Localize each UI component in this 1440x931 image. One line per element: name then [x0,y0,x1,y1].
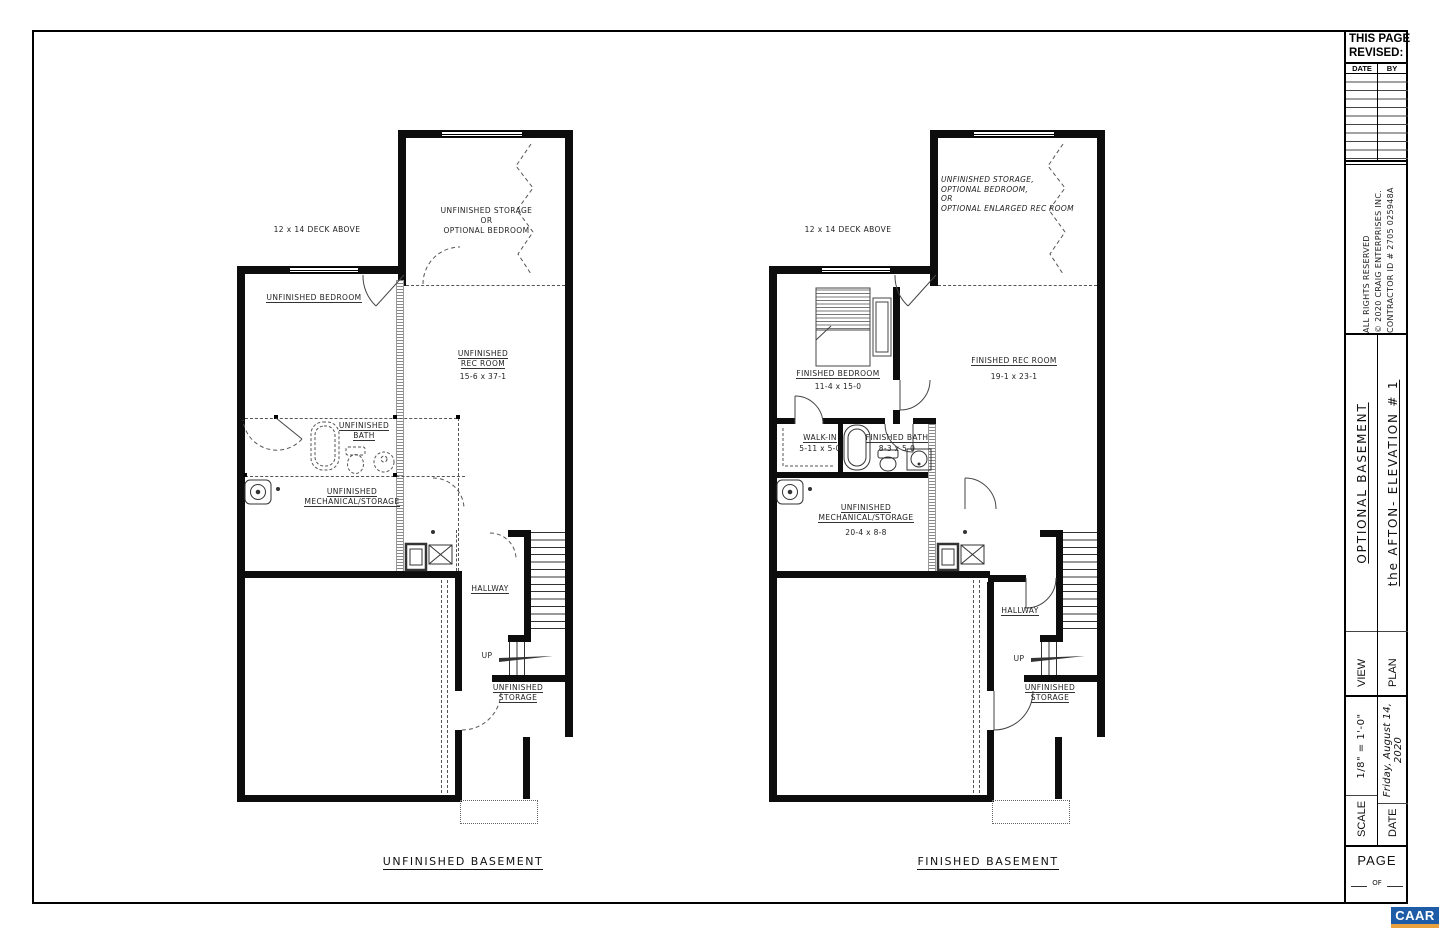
revised-title-line1: THIS PAGE [1349,33,1410,45]
storage-label: UNFINISHED STORAGE [1015,683,1085,703]
caar-logo: CAAR [1391,907,1439,928]
rec-room-label: FINISHED REC ROOM 19-1 x 23-1 [949,356,1079,382]
rights-text: ALL RIGHTS RESERVED [1362,235,1371,333]
page-number-line [1351,878,1367,887]
line [1377,62,1378,160]
bath-label: UNFINISHED BATH [329,421,399,441]
up-label: UP [1009,654,1029,664]
page-box: PAGE OF [1346,848,1408,902]
toilet-icon [346,447,365,474]
copyright-block: ALL RIGHTS RESERVED © 2020 CRAIG ENTERPR… [1348,163,1408,333]
stair-direction-arrow [1031,656,1085,662]
copyright-text: © 2020 CRAIG ENTERPRISES INC. [1374,190,1383,333]
revised-title-line2: REVISED: [1349,47,1403,59]
bedroom-label: FINISHED BEDROOM 11-4 x 15-0 [783,369,893,392]
page-label: PAGE [1346,853,1408,868]
plan-label: PLAN [1378,631,1408,695]
mechanical-label: UNFINISHED MECHANICAL/STORAGE [287,487,417,507]
scale-section: SCALE 1/8" = 1'-0" [1346,697,1377,845]
line [1377,697,1378,845]
bedroom-label: UNFINISHED BEDROOM [259,293,369,303]
storage-label: UNFINISHED STORAGE [483,683,553,703]
line [1377,335,1378,695]
left-plan-caption: UNFINISHED BASEMENT [363,855,563,870]
scale-value: 1/8" = 1'-0" [1356,697,1367,795]
unfinished-basement-plan: 12 x 14 DECK ABOVE UNFINISHED STORAGE OR… [237,128,573,828]
mechanical-label: UNFINISHED MECHANICAL/STORAGE 20-4 x 8-8 [806,503,926,538]
water-heater-icon [245,480,280,504]
date-section: DATE Friday, August 14, 2020 [1378,697,1408,845]
bed-icon [816,288,891,366]
water-heater-icon [777,480,812,504]
view-section: VIEW OPTIONAL BASEMENT [1346,335,1377,695]
optional-room-label: UNFINISHED STORAGE OR OPTIONAL BEDROOM [429,206,544,236]
up-label: UP [477,651,497,661]
plan-section: PLAN the AFTON- ELEVATION # 1 [1378,335,1408,695]
bath-label: FINISHED BATH 8-3 x 5-0 [863,433,931,454]
crawl-access-icon [429,530,452,564]
rec-room-label: UNFINISHED REC ROOM 15-6 x 37-1 [438,349,528,382]
date-value: Friday, August 14, 2020 [1382,697,1404,803]
deck-label: 12 x 14 DECK ABOVE [257,225,377,235]
sink-icon [374,452,394,472]
scale-label: SCALE [1346,795,1377,845]
view-value: OPTIONAL BASEMENT [1355,335,1369,631]
optional-room-note: UNFINISHED STORAGE, OPTIONAL BEDROOM, OR… [941,175,1081,213]
revision-date-col: DATE [1349,64,1375,73]
page-of-row: OF [1346,878,1408,887]
hallway-label: HALLWAY [989,606,1051,616]
deck-label: 12 x 14 DECK ABOVE [788,225,908,235]
washer-icon [938,544,958,570]
hallway-label: HALLWAY [459,584,521,594]
line [1346,160,1408,162]
finished-basement-plan: 12 x 14 DECK ABOVE UNFINISHED STORAGE, O… [769,128,1105,828]
contractor-id-text: CONTRACTOR ID # 2705 025948A [1386,187,1395,333]
drawing-sheet: 12 x 14 DECK ABOVE UNFINISHED STORAGE OR… [0,0,1440,931]
page-total-line [1387,878,1403,887]
view-label: VIEW [1346,631,1377,695]
revision-by-col: BY [1380,64,1404,73]
crawl-access-icon [961,530,984,564]
of-label: OF [1372,879,1382,887]
date-label: DATE [1378,803,1408,845]
washer-icon [406,544,426,570]
plan-value: the AFTON- ELEVATION # 1 [1386,335,1400,631]
line [1346,845,1408,847]
right-plan-caption: FINISHED BASEMENT [888,855,1088,870]
stair-direction-arrow [499,656,553,662]
walkin-label: WALK-IN 5-11 x 5-0 [785,433,855,454]
